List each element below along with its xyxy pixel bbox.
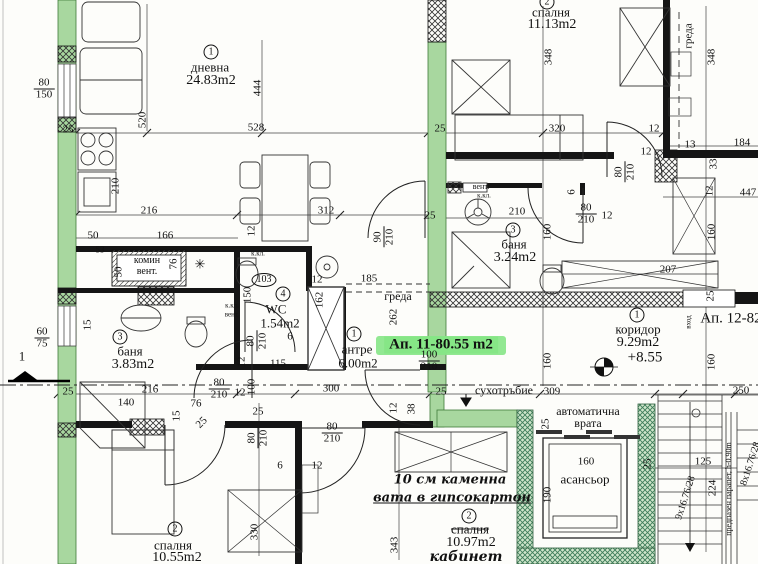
room-spalnya-bl-number: 2 — [168, 522, 183, 537]
dim-label: 90210 — [373, 227, 396, 248]
room-wc-area: 1.54m2 — [260, 317, 299, 330]
dim-label: 50 — [114, 267, 125, 278]
dim-label: 309 — [544, 387, 561, 398]
dim-label: 25 — [541, 419, 552, 430]
dim-label: 12 — [312, 461, 323, 472]
room-asansior-name: асансьор — [560, 473, 609, 486]
dim-label: 447 — [740, 188, 757, 199]
dim-label: 528 — [248, 123, 265, 134]
dim-label: 12 — [602, 211, 613, 222]
room-wc-number: 4 — [276, 287, 291, 302]
dim-label: 80210 — [247, 428, 270, 449]
section-mark-number: 1 — [19, 350, 26, 363]
komin-vent-line1: комин — [134, 256, 160, 266]
room-antre-area: 6.00m2 — [338, 357, 377, 370]
dim-label: 12 — [649, 124, 660, 135]
dim-label: 25 — [706, 291, 717, 302]
room-banya-right-area: 3.24m2 — [494, 251, 536, 265]
dim-label: 160 — [707, 224, 718, 241]
dim-label: 300 — [323, 384, 340, 395]
dim-label: 160 — [578, 457, 595, 468]
dim-label: 25 — [63, 387, 74, 398]
komin-vent-line2: вент. — [137, 267, 158, 277]
stairs-down-label: 9x16.76/28 — [674, 475, 698, 521]
dim-label: 12 — [312, 275, 323, 286]
dim-label: 348 — [707, 49, 718, 66]
dim-label: 100210 — [419, 350, 440, 373]
dim-label: 250 — [733, 386, 750, 397]
greda-center-label: греда — [384, 290, 412, 302]
handwritten-note-line2: вата в гипсокартон — [373, 492, 531, 505]
room-banya-left-area: 3.83m2 — [112, 358, 154, 372]
room-spalnya-bl-area: 10.55m2 — [152, 551, 201, 564]
floor-plan: 1дневна24.83m22спалня11.13m23баня3.83m24… — [0, 0, 758, 564]
vhod-label: вход — [686, 315, 693, 328]
dim-label: 320 — [549, 124, 566, 135]
dim-label: 12 — [389, 403, 400, 414]
avtomatichna-vrata-line2: врата — [574, 417, 601, 429]
snowflake-symbol: ✳ — [195, 258, 206, 271]
dim-label: 185 — [361, 274, 378, 285]
dim-label: 25 — [194, 415, 210, 431]
room-koridor-name: коридор — [615, 323, 660, 336]
room-spalnya-top-area: 11.13m2 — [528, 18, 577, 32]
room-koridor-number: 1 — [630, 308, 645, 323]
room-antre-name: антре — [342, 343, 373, 356]
dim-label: 15 — [83, 320, 94, 331]
room-spalnya-bc-name: спалня — [451, 523, 489, 536]
dim-label: 76 — [169, 259, 180, 270]
greda-top-label: греда — [684, 23, 695, 48]
dim-label: 15 — [172, 411, 183, 422]
dim-label: 12 — [235, 388, 246, 399]
dim-label: 262 — [389, 309, 400, 326]
apartment-11-label: Ап. 11-80.55 m2 — [384, 337, 498, 354]
dim-label: 80150 — [34, 78, 55, 101]
dim-label: 216 — [141, 206, 158, 217]
room-wc-name: WC — [266, 303, 287, 316]
room-dnevna-area: 24.83m2 — [186, 74, 235, 88]
dim-label: 520 — [138, 112, 149, 129]
dim-label: 312 — [318, 206, 335, 217]
dim-label: 160 — [543, 353, 554, 370]
dim-label: 166 — [157, 231, 174, 242]
dim-label: 162 — [315, 292, 326, 309]
dim-label: 50 — [88, 231, 99, 242]
dim-label: 216 — [142, 385, 159, 396]
dim-label: 12 — [641, 147, 652, 158]
apartment-12-label: Ап. 12-82 — [700, 312, 758, 327]
dim-label: 150 — [243, 287, 254, 304]
dim-label: 6 — [567, 189, 578, 195]
vent-banya-label: вент. — [225, 312, 239, 319]
dim-label: 348 — [544, 49, 555, 66]
dim-label: 160 — [543, 224, 554, 241]
dim-label: 125 — [695, 457, 712, 468]
dim-label: 76 — [191, 399, 202, 410]
dim-label: 25 — [425, 211, 436, 222]
room-banya-right-number: 3 — [506, 223, 521, 238]
room-dnevna-name: дневна — [191, 61, 229, 74]
parapet-label: предпазен парапет, h-0.90m — [725, 442, 733, 536]
dim-label: 80210 — [209, 378, 230, 401]
room-kabinet-name: кабинет — [430, 550, 503, 564]
shaft-103-label: 103 — [252, 273, 277, 287]
label-layer: 1дневна24.83m22спалня11.13m23баня3.83m24… — [0, 0, 758, 564]
dim-label: 53 — [96, 246, 105, 255]
room-antre-number: 1 — [347, 327, 362, 342]
dim-label: 100 — [247, 379, 258, 396]
koridor-level-mark: +8.55 — [628, 351, 663, 366]
dim-label: 80210 — [322, 422, 343, 445]
stairs-up-label: 8x16.76/28 — [739, 441, 758, 487]
dim-label: 190 — [543, 487, 554, 504]
dim-label: 6 — [287, 332, 293, 343]
dim-label: 6075 — [35, 327, 50, 350]
dim-label: 343 — [390, 537, 401, 554]
dim-label: 210 — [509, 207, 526, 218]
dim-label: 25 — [435, 124, 446, 135]
dim-label: 13 — [685, 140, 696, 151]
kkl-banya-label: к.кл. — [225, 303, 239, 310]
dim-label: 210 — [111, 178, 122, 195]
dim-label: 25 — [253, 407, 264, 418]
vent-right-label: вент. — [473, 183, 489, 191]
handwritten-note-line1: 10 см каменна — [394, 474, 507, 487]
dim-label: 12 — [237, 357, 248, 368]
dim-label: 25 — [643, 459, 654, 470]
dim-label: 33 — [709, 159, 720, 170]
dim-label: 160 — [707, 354, 718, 371]
room-banya-left-number: 3 — [113, 330, 128, 345]
suhotrabie-label: сухотръбие — [475, 384, 533, 396]
dim-label: 207 — [660, 265, 677, 276]
dim-label: 140 — [118, 398, 135, 409]
dim-label: 80210 — [246, 331, 269, 352]
dim-label: 444 — [253, 80, 264, 97]
dim-label: 184 — [734, 138, 751, 149]
kkl-wc-label: к.кл. — [251, 251, 265, 258]
room-spalnya-bc-area: 10.97m2 — [446, 536, 495, 550]
kkl-right-label: к.кл. — [477, 193, 491, 200]
room-koridor-area: 9.29m2 — [617, 336, 659, 350]
room-banya-right-name: баня — [501, 238, 526, 251]
dim-label: 330 — [250, 524, 261, 541]
dim-label: 80210 — [576, 203, 597, 226]
room-banya-left-name: баня — [117, 345, 142, 358]
dim-label: 224 — [708, 480, 719, 497]
dim-label: 25 — [436, 387, 447, 398]
dim-label: 6 — [277, 461, 283, 472]
dim-label: 80210 — [614, 162, 637, 183]
room-dnevna-number: 1 — [204, 45, 219, 60]
dim-label: 12 — [705, 186, 716, 197]
dim-label: 25 — [63, 125, 74, 136]
dim-label: 115 — [270, 359, 286, 370]
dim-label: 38 — [407, 404, 418, 415]
dim-label: 12 — [247, 226, 258, 237]
